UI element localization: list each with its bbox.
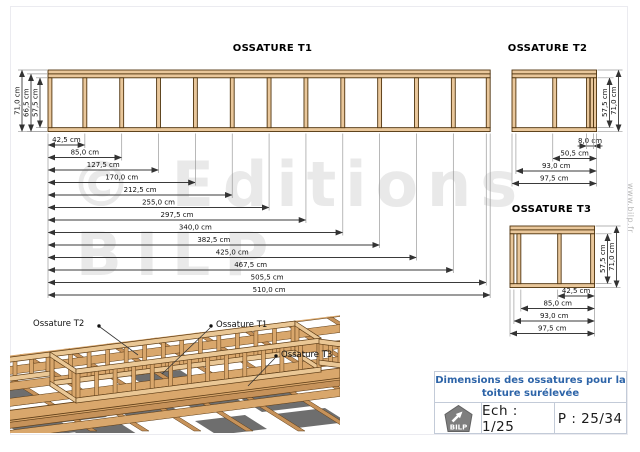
svg-text:71,0 cm: 71,0 cm [14,86,22,115]
bilp-logo-icon: BILP [443,405,474,433]
svg-text:57,5 cm: 57,5 cm [601,88,609,117]
svg-text:50,5 cm: 50,5 cm [560,150,589,158]
iso-label-t3: Ossature T3 [281,350,332,360]
title-block-row: BILP Ech : 1/25 P : 25/34 [435,403,626,434]
svg-text:297,5 cm: 297,5 cm [160,211,193,219]
frame-title-t1: OSSATURE T1 [200,43,345,54]
iso-label-t2: Ossature T2 [33,319,84,329]
frame-t2 [512,70,597,132]
frame-title-t2: OSSATURE T2 [475,43,620,54]
title-line-2: toiture surélevée [435,387,626,400]
svg-text:382,5 cm: 382,5 cm [197,236,230,244]
bilp-logo-cell: BILP [435,403,481,434]
drawing-page: © Editions BILP www.bilp.fr OSSATURE T1 … [0,0,640,452]
svg-text:93,0 cm: 93,0 cm [542,162,571,170]
svg-text:255,0 cm: 255,0 cm [142,199,175,207]
svg-text:85,0 cm: 85,0 cm [71,149,100,157]
svg-text:8,0 cm: 8,0 cm [578,137,602,145]
svg-text:93,0 cm: 93,0 cm [540,312,569,320]
svg-text:57,5 cm: 57,5 cm [32,88,40,117]
svg-text:71,0 cm: 71,0 cm [608,242,616,271]
svg-text:170,0 cm: 170,0 cm [105,174,138,182]
scale-label: Ech : 1/25 [481,403,554,434]
svg-text:57,5 cm: 57,5 cm [599,244,607,273]
frame-t3 [510,226,595,288]
svg-text:85,0 cm: 85,0 cm [543,300,572,308]
svg-text:97,5 cm: 97,5 cm [540,175,569,183]
svg-text:505,5 cm: 505,5 cm [251,274,284,282]
svg-text:66,5 cm: 66,5 cm [23,88,31,117]
page-number-label: P : 25/34 [554,403,627,434]
title-block-title: Dimensions des ossatures pour la toiture… [435,372,626,403]
title-block: Dimensions des ossatures pour la toiture… [434,371,627,434]
svg-text:42,5 cm: 42,5 cm [52,136,81,144]
svg-text:212,5 cm: 212,5 cm [124,186,157,194]
svg-text:467,5 cm: 467,5 cm [234,261,267,269]
svg-text:42,5 cm: 42,5 cm [562,287,591,295]
svg-text:71,0 cm: 71,0 cm [610,86,618,115]
title-line-1: Dimensions des ossatures pour la [435,374,626,387]
svg-text:340,0 cm: 340,0 cm [179,224,212,232]
iso-label-t1: Ossature T1 [216,320,267,330]
svg-text:510,0 cm: 510,0 cm [253,286,286,294]
frame-title-t3: OSSATURE T3 [479,204,624,215]
svg-text:97,5 cm: 97,5 cm [538,325,567,333]
frame-t1 [48,70,490,132]
logo-text: BILP [449,423,467,431]
svg-text:127,5 cm: 127,5 cm [87,161,120,169]
svg-text:425,0 cm: 425,0 cm [216,249,249,257]
